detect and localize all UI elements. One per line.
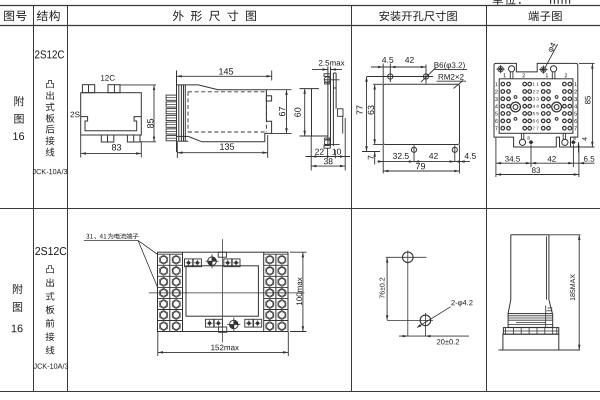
svg-text:φ4: φ4	[546, 40, 559, 53]
